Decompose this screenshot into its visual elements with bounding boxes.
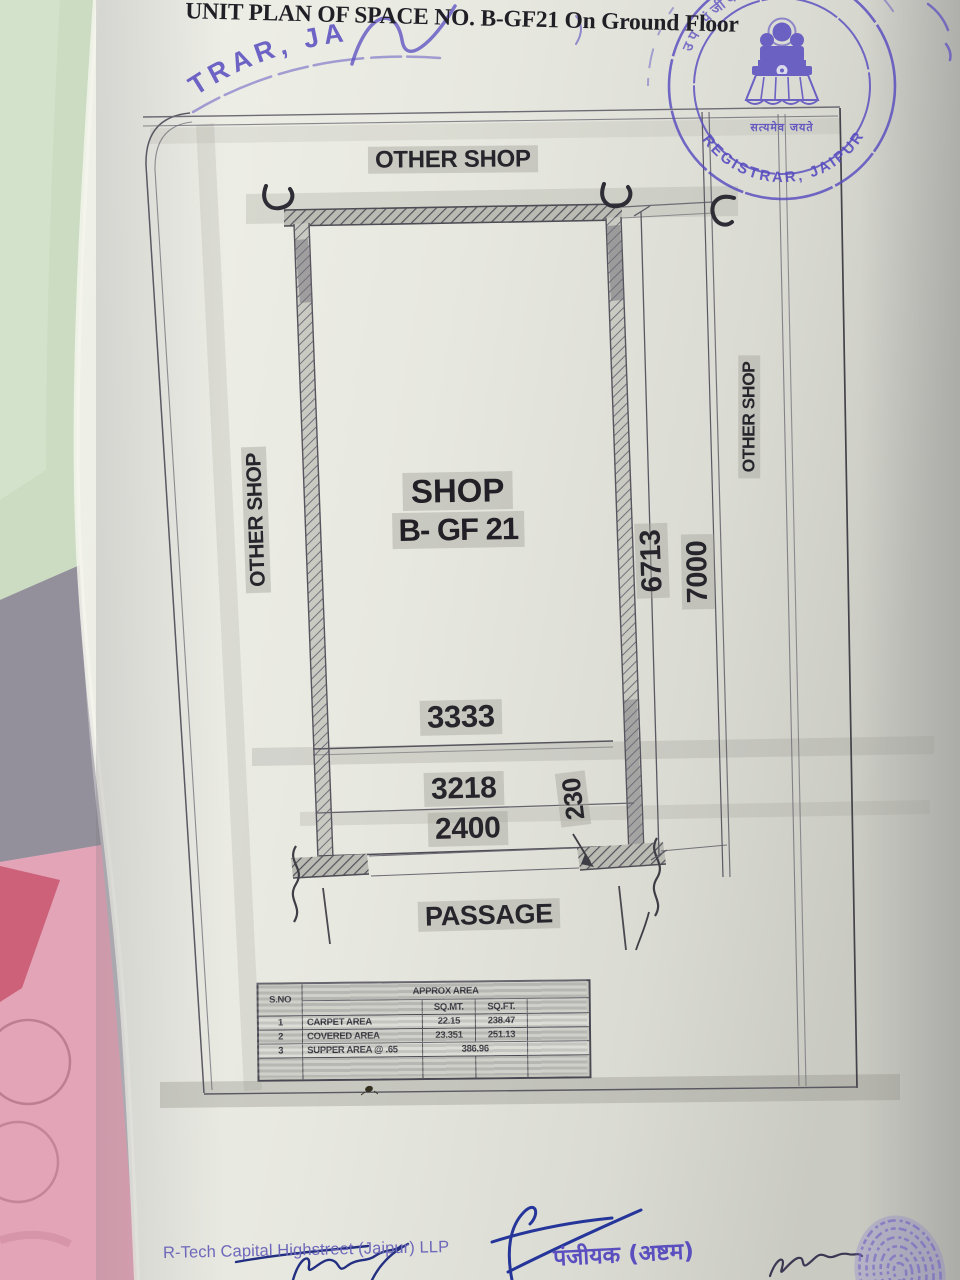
- dimension-6713: 6713: [634, 523, 670, 599]
- stamp-banner-text: सत्यमेव जयते: [749, 120, 813, 134]
- table-header-blank: [303, 1000, 423, 1016]
- label-passage: PASSAGE: [418, 898, 561, 932]
- photographed-floor-plan-document: REGISTRAR, JAIPUR उप पंजीयक जयपुर सत्यमे…: [0, 0, 960, 1280]
- label-other-shop-right: OTHER SHOP: [738, 356, 760, 479]
- table-header-sqft: SQ.FT.: [476, 999, 528, 1015]
- label-other-shop-left: OTHER SHOP: [241, 447, 271, 594]
- table-row: 1: [259, 1016, 303, 1030]
- plan-drawing: REGISTRAR, JAIPUR उप पंजीयक जयपुर सत्यमे…: [0, 0, 960, 1280]
- dimension-3333: 3333: [420, 699, 502, 735]
- dimension-2400: 2400: [428, 811, 508, 847]
- table-header-sno: S.NO: [259, 984, 303, 1016]
- shop-name-line2: B- GF 21: [392, 511, 524, 549]
- table-header-sqmt: SQ.MT.: [423, 999, 476, 1015]
- label-other-shop-top: OTHER SHOP: [368, 145, 538, 174]
- dimension-230: 230: [555, 770, 591, 827]
- dimension-3218: 3218: [424, 771, 504, 807]
- shop-name-line1: SHOP: [403, 471, 513, 511]
- table-row: 3: [259, 1044, 303, 1058]
- area-table: S.NO APPROX AREA SQ.MT. SQ.FT. 1 CARPET …: [256, 979, 591, 1081]
- dimension-7000: 7000: [681, 534, 715, 609]
- table-row: 2: [259, 1030, 303, 1044]
- label-shop-name: SHOP B- GF 21: [387, 471, 528, 549]
